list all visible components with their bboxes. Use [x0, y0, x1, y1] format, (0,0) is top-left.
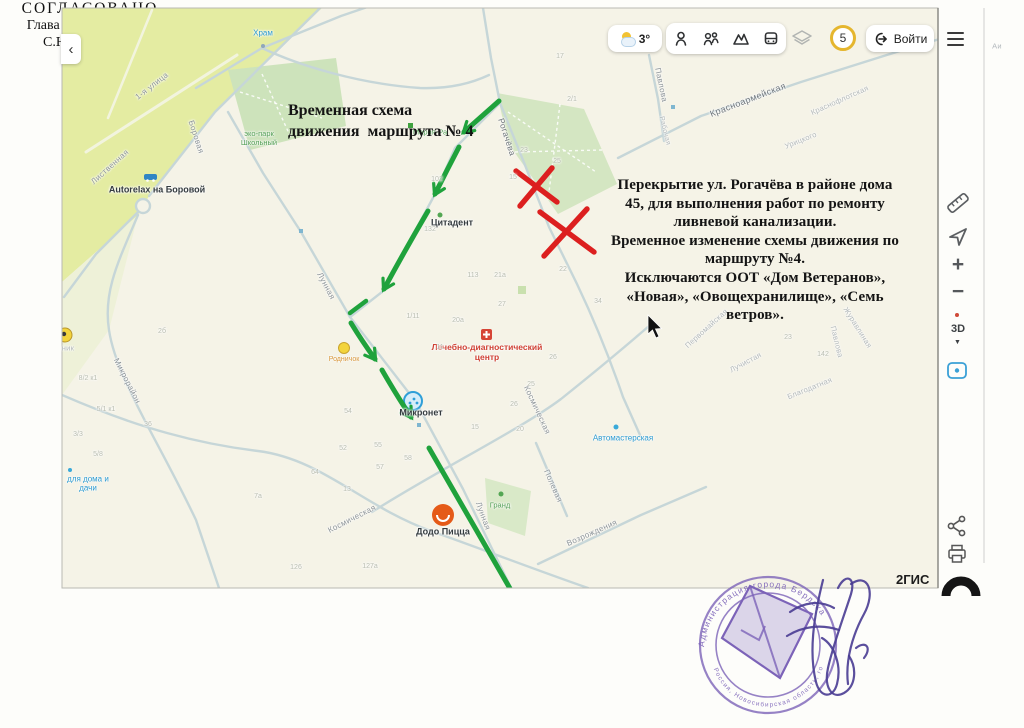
- login-label: Войти: [894, 32, 928, 46]
- mountains-icon[interactable]: [732, 30, 750, 48]
- map-layers-toolbar: [666, 23, 786, 54]
- logo-arc: [946, 581, 976, 596]
- zone-badge[interactable]: 5: [830, 25, 856, 51]
- chevron-left-icon: ‹: [69, 41, 74, 58]
- login-button[interactable]: Войти: [866, 25, 934, 52]
- scanned-document-page: Администрация города Бердска Россия, Нов…: [0, 0, 1024, 728]
- layers-icon[interactable]: [791, 29, 813, 49]
- weather-widget[interactable]: 3°: [608, 25, 662, 52]
- car-service-icon: [144, 174, 157, 180]
- zoom-in-button[interactable]: +: [944, 253, 972, 277]
- dodo-pizza-icon: [432, 504, 454, 526]
- person-pin-icon[interactable]: [672, 30, 690, 48]
- gis-logo-text: 2ГИС: [896, 572, 929, 587]
- friends-icon[interactable]: [702, 30, 720, 48]
- panorama-icon[interactable]: [945, 360, 969, 382]
- temperature-value: 3°: [639, 32, 650, 46]
- locate-arrow-icon[interactable]: [946, 224, 970, 248]
- document-title: Временная схема движения маршрута № 4: [288, 100, 528, 142]
- collapse-sidebar-button[interactable]: ‹: [61, 34, 81, 64]
- sun-cloud-icon: [620, 32, 636, 46]
- caret-down-icon: ▼: [954, 339, 961, 346]
- print-icon[interactable]: [946, 543, 968, 565]
- notification-dot: [955, 313, 959, 317]
- document-body-text: Перекрытие ул. Рогачёва в районе дома 45…: [600, 176, 910, 325]
- ruler-icon[interactable]: [944, 190, 972, 216]
- kindergarten-icon: [339, 343, 350, 354]
- share-icon[interactable]: [946, 514, 968, 538]
- 3d-mode-button[interactable]: 3D: [944, 323, 972, 335]
- login-arrow-icon: [873, 31, 889, 47]
- bus-icon[interactable]: [762, 30, 780, 48]
- hamburger-menu-icon[interactable]: [947, 32, 964, 46]
- church-marker: [261, 44, 265, 48]
- zone-number: 5: [840, 31, 847, 45]
- zoom-out-button[interactable]: −: [944, 280, 972, 304]
